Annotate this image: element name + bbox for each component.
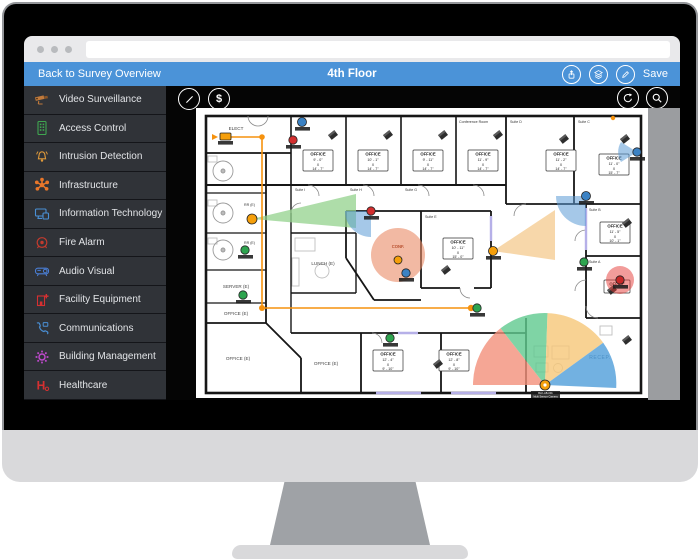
keypad-icon	[34, 120, 50, 136]
sidebar-item-audio-visual[interactable]: Audio Visual	[24, 257, 166, 286]
back-to-survey-link[interactable]: Back to Survey Overview	[38, 68, 161, 80]
sidebar-item-label: Building Management	[59, 351, 156, 362]
sidebar-item-label: Healthcare	[59, 380, 107, 391]
camera-device-green	[239, 291, 247, 299]
edit-icon[interactable]	[616, 65, 635, 84]
conf-label: CONF.	[392, 244, 405, 249]
sidebar-item-label: Access Control	[59, 123, 126, 134]
svg-text:11' - 2": 11' - 2"	[556, 158, 568, 162]
svg-text:10' - 1": 10' - 1"	[609, 239, 621, 243]
rotate-icon[interactable]	[617, 87, 639, 109]
url-bar[interactable]	[86, 41, 670, 58]
svg-text:9' - 11": 9' - 11"	[423, 158, 435, 162]
sidebar-item-label: Audio Visual	[59, 266, 114, 277]
svg-text:Multi Sensor Camera: Multi Sensor Camera	[533, 394, 558, 398]
sidebar-item-label: Fire Alarm	[59, 237, 105, 248]
svg-text:14' - 7": 14' - 7"	[477, 167, 489, 171]
window-dot[interactable]	[51, 46, 58, 53]
healthcare-h-icon: H	[34, 377, 50, 393]
sidebar-item-fire-alarm[interactable]: Fire Alarm	[24, 229, 166, 258]
gear-icon	[34, 349, 50, 365]
svg-text:14' - 7": 14' - 7"	[555, 167, 567, 171]
layers-icon[interactable]	[589, 65, 608, 84]
node-star-icon	[34, 177, 50, 193]
sensor-coverage-circle	[371, 228, 425, 282]
svg-text:12' - 4": 12' - 4"	[382, 358, 394, 362]
cctv-camera-icon	[34, 92, 50, 108]
svg-text:OFFICE: OFFICE	[607, 224, 623, 229]
svg-text:OFFICE: OFFICE	[475, 152, 491, 157]
sidebar-item-video-surveillance[interactable]: Video Surveillance	[24, 86, 166, 115]
sidebar-item-healthcare[interactable]: H Healthcare	[24, 371, 166, 400]
sidebar-item-facility-equipment[interactable]: Facility Equipment	[24, 286, 166, 315]
svg-text:15' - 7": 15' - 7"	[608, 171, 620, 175]
room-label: RR (E)	[244, 241, 255, 245]
fire-bell-icon	[34, 235, 50, 251]
alarm-device-red	[616, 276, 624, 284]
sidebar-item-label: Communications	[59, 323, 133, 334]
dollar-glyph: $	[216, 93, 222, 105]
dome-camera-blue	[582, 192, 591, 201]
svg-text:10' - 11": 10' - 11"	[452, 246, 466, 250]
svg-text:14' - 7": 14' - 7"	[312, 167, 324, 171]
sidebar-item-access-control[interactable]: Access Control	[24, 115, 166, 144]
sensor-device-orange	[394, 256, 402, 264]
browser-titlebar	[24, 36, 680, 62]
suite-label: Suite G	[405, 188, 417, 192]
svg-text:10' - 1": 10' - 1"	[367, 158, 379, 162]
alarm-bell-icon	[34, 149, 50, 165]
room-label: ELECT	[229, 126, 244, 131]
suite-label: Suite B	[589, 208, 601, 212]
svg-text:14' - 7": 14' - 7"	[422, 167, 434, 171]
svg-text:9' - 10": 9' - 10"	[448, 367, 460, 371]
camera-device-green	[241, 246, 249, 254]
window-dot[interactable]	[65, 46, 72, 53]
budget-icon[interactable]: $	[208, 88, 230, 110]
svg-text:11' - 9": 11' - 9"	[478, 158, 490, 162]
dome-camera-blue	[633, 148, 641, 156]
monitor-base	[232, 545, 468, 559]
svg-text:OFFICE: OFFICE	[380, 352, 396, 357]
camera-device-green	[473, 304, 481, 312]
window-controls[interactable]	[37, 46, 72, 53]
svg-text:OFFICE: OFFICE	[553, 152, 569, 157]
window-dot[interactable]	[37, 46, 44, 53]
svg-text:9' - 0": 9' - 0"	[313, 158, 323, 162]
share-glyph	[566, 69, 577, 80]
svg-text:12' - 8": 12' - 8"	[448, 358, 460, 362]
sidebar-item-label: Intrusion Detection	[59, 151, 142, 162]
sidebar-item-information-technology[interactable]: Information Technology	[24, 200, 166, 229]
floorplan-workspace[interactable]: $	[166, 86, 680, 400]
camera-device-orange	[489, 247, 498, 256]
alarm-device-red	[367, 207, 375, 215]
room-label: SERVER (E)	[223, 284, 250, 289]
room-label: RR (E)	[244, 203, 255, 207]
sidebar-item-label: Infrastructure	[59, 180, 118, 191]
svg-text:11' - 5": 11' - 5"	[610, 230, 622, 234]
share-icon[interactable]	[562, 65, 581, 84]
svg-text:14' - 7": 14' - 7"	[367, 167, 379, 171]
suite-label: Suite A	[589, 260, 601, 264]
monitor-icon	[34, 206, 50, 222]
dome-camera-blue	[298, 118, 307, 127]
svg-text:OFFICE: OFFICE	[446, 352, 462, 357]
projector-icon	[34, 263, 50, 279]
alarm-device-red	[289, 136, 297, 144]
svg-text:OFFICE: OFFICE	[420, 152, 436, 157]
sidebar-item-label: Information Technology	[59, 208, 162, 219]
svg-text:OFFICE: OFFICE	[450, 240, 466, 245]
svg-text:11' - 0": 11' - 0"	[609, 162, 621, 166]
sidebar-item-label: Facility Equipment	[59, 294, 141, 305]
sidebar-item-infrastructure[interactable]: Infrastructure	[24, 172, 166, 201]
room-label: OFFICE (E)	[224, 311, 249, 316]
layers-glyph	[593, 69, 604, 80]
room-label: OFFICE (E)	[314, 361, 339, 366]
zoom-icon[interactable]	[646, 87, 668, 109]
camera-device-green	[386, 334, 394, 342]
dome-camera-blue	[402, 269, 410, 277]
monitor-stand	[270, 482, 430, 545]
svg-text:OFFICE: OFFICE	[310, 152, 326, 157]
sidebar-item-building-management[interactable]: Building Management	[24, 343, 166, 372]
sidebar-item-intrusion-detection[interactable]: Intrusion Detection	[24, 143, 166, 172]
sidebar-item-label: Video Surveillance	[59, 94, 142, 105]
suite-label: Suite H	[350, 188, 362, 192]
facility-building-icon	[34, 292, 50, 308]
camera-device-orange	[220, 133, 231, 140]
sensor-device-orange	[247, 214, 257, 224]
save-button[interactable]: Save	[643, 68, 668, 80]
line-tool-icon[interactable]	[178, 88, 200, 110]
app-header: Back to Survey Overview 4th Floor Save	[24, 62, 680, 86]
suite-label: Conference Room	[459, 120, 488, 124]
room-label: LUNCH (E)	[311, 261, 335, 266]
svg-text:15' - 0": 15' - 0"	[452, 255, 464, 259]
floorplan-canvas[interactable]: ELECT SERVER (E) LUNCH (E) OFFICE (E) OF…	[196, 108, 648, 398]
suite-label: Suite I	[295, 188, 305, 192]
room-label: OFFICE (E)	[226, 356, 251, 361]
svg-text:OFFICE: OFFICE	[365, 152, 381, 157]
monitor-chin	[2, 430, 698, 482]
svg-text:H: H	[37, 379, 46, 393]
device-category-sidebar: Video Surveillance Access Control Intrus…	[24, 86, 166, 400]
suite-label: Suite C	[578, 120, 590, 124]
camera-device-green	[580, 258, 588, 266]
canvas-right-gutter	[648, 108, 680, 400]
pencil-glyph	[620, 69, 631, 80]
suite-label: Suite D	[510, 120, 522, 124]
sidebar-item-communications[interactable]: Communications	[24, 314, 166, 343]
svg-text:9' - 10": 9' - 10"	[382, 367, 394, 371]
phone-icon	[34, 320, 50, 336]
suite-label: Suite E	[425, 215, 437, 219]
